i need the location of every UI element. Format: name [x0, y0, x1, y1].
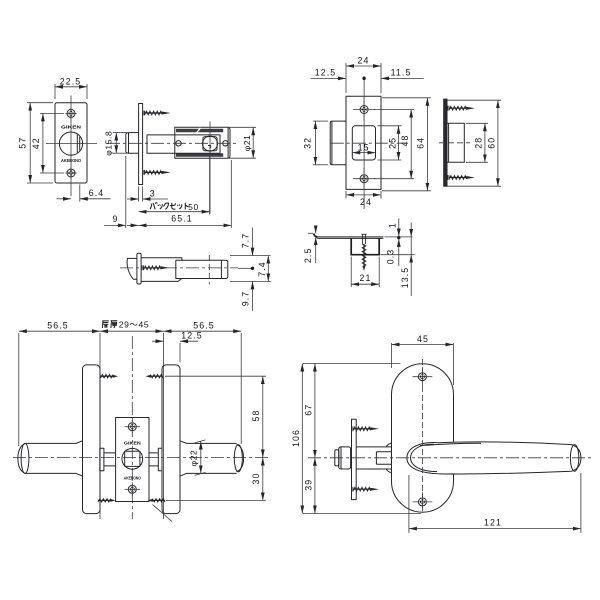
- svg-text:6.4: 6.4: [89, 188, 105, 198]
- svg-text:106: 106: [291, 429, 301, 447]
- svg-text:21: 21: [360, 273, 372, 283]
- svg-text:0.3: 0.3: [386, 249, 396, 265]
- svg-text:AKEBONO: AKEBONO: [61, 158, 81, 163]
- svg-text:28: 28: [474, 137, 484, 149]
- svg-text:22.5: 22.5: [60, 77, 82, 87]
- svg-text:φ22: φ22: [189, 450, 199, 467]
- svg-text:GIKEN: GIKEN: [124, 440, 142, 445]
- svg-text:56.5: 56.5: [47, 320, 69, 330]
- svg-text:45: 45: [417, 334, 429, 344]
- svg-text:39: 39: [303, 479, 313, 491]
- svg-text:AKEBONO: AKEBONO: [124, 475, 141, 480]
- svg-text:121: 121: [484, 518, 502, 528]
- svg-text:GIKEN: GIKEN: [61, 124, 82, 129]
- svg-text:9.7: 9.7: [240, 291, 250, 307]
- svg-text:50: 50: [188, 202, 199, 212]
- svg-text:30: 30: [251, 473, 261, 485]
- svg-text:58: 58: [251, 410, 261, 422]
- svg-text:12.5: 12.5: [181, 331, 203, 341]
- svg-text:φ21: φ21: [242, 135, 252, 152]
- svg-text:15: 15: [358, 142, 370, 152]
- svg-text:57: 57: [18, 137, 28, 149]
- svg-text:24: 24: [360, 197, 372, 207]
- svg-text:11.5: 11.5: [391, 68, 412, 78]
- svg-text:24: 24: [358, 56, 370, 66]
- svg-text:29～45: 29～45: [119, 320, 149, 330]
- svg-text:φ15.8: φ15.8: [104, 131, 114, 156]
- svg-text:67: 67: [303, 404, 313, 416]
- svg-text:2.5: 2.5: [303, 248, 313, 264]
- svg-text:65.1: 65.1: [171, 214, 193, 224]
- svg-text:64: 64: [416, 137, 426, 149]
- svg-text:3: 3: [150, 188, 156, 198]
- svg-text:1: 1: [387, 222, 397, 228]
- svg-text:60: 60: [487, 137, 497, 149]
- svg-text:25: 25: [387, 137, 397, 149]
- svg-text:56.5: 56.5: [193, 320, 215, 330]
- svg-text:7.7: 7.7: [240, 233, 250, 249]
- svg-text:12.5: 12.5: [315, 68, 337, 78]
- svg-text:7.4: 7.4: [257, 261, 267, 277]
- svg-text:32: 32: [303, 137, 313, 149]
- svg-text:9: 9: [113, 214, 119, 224]
- svg-text:48: 48: [400, 135, 410, 147]
- svg-text:42: 42: [31, 137, 41, 149]
- svg-text:13.5: 13.5: [400, 267, 410, 289]
